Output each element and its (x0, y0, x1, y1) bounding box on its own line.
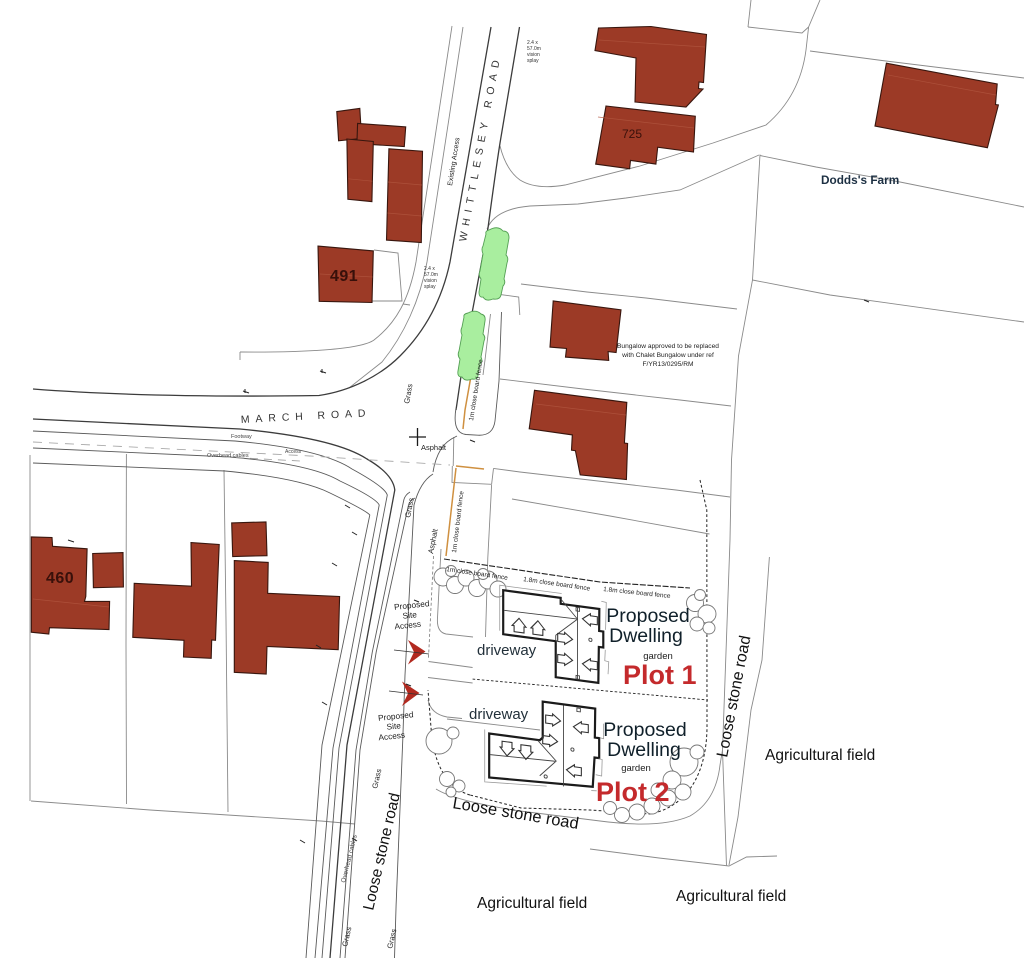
svg-text:splay: splay (527, 58, 539, 64)
svg-text:Plot 2: Plot 2 (596, 777, 670, 807)
svg-text:Dwelling: Dwelling (609, 625, 683, 647)
svg-text:F/YR13/0295/RM: F/YR13/0295/RM (643, 361, 694, 368)
svg-text:Access: Access (285, 449, 302, 455)
svg-text:Dodds's Farm: Dodds's Farm (821, 173, 899, 187)
svg-text:Agricultural field: Agricultural field (765, 747, 875, 764)
svg-text:Proposed: Proposed (606, 605, 689, 627)
svg-text:with Chalet Bungalow under ref: with Chalet Bungalow under ref (621, 352, 714, 359)
svg-text:garden: garden (621, 763, 651, 774)
svg-text:460: 460 (46, 570, 74, 587)
svg-text:Plot 1: Plot 1 (623, 660, 697, 690)
svg-text:Proposed: Proposed (603, 719, 686, 741)
svg-text:Footway: Footway (231, 434, 252, 440)
svg-text:Agricultural field: Agricultural field (676, 888, 786, 905)
svg-text:Agricultural field: Agricultural field (477, 895, 587, 912)
svg-text:Bungalow approved to be replac: Bungalow approved to be replaced (617, 343, 719, 350)
svg-text:Asphalt: Asphalt (421, 443, 447, 452)
svg-text:driveway: driveway (477, 642, 537, 659)
svg-text:491: 491 (330, 268, 358, 285)
svg-text:splay: splay (424, 284, 436, 290)
svg-text:Overhead cables: Overhead cables (207, 453, 249, 459)
svg-text:driveway: driveway (469, 706, 529, 723)
svg-text:Dwelling: Dwelling (607, 739, 681, 761)
svg-text:725: 725 (622, 127, 642, 141)
